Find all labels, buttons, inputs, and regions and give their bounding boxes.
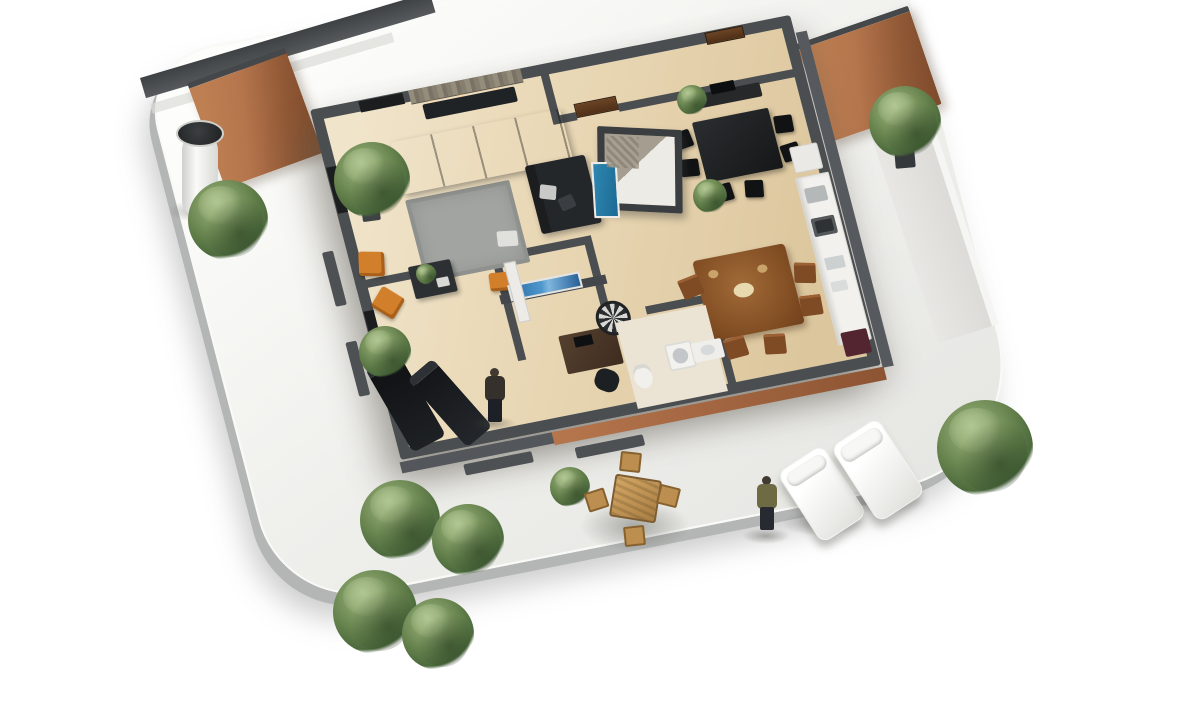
plant-kitchen-small (693, 179, 727, 213)
person-indoor-torso (485, 376, 505, 401)
person-indoor-legs (488, 399, 502, 422)
plant-lounge (359, 326, 411, 378)
outdoor-chair-2 (619, 451, 642, 473)
plant-terrace-b (432, 504, 504, 576)
plant-living-room (334, 142, 410, 218)
scene-overlay (0, 0, 1200, 715)
plant-palm-right (937, 400, 1033, 496)
outdoor-chair-4 (623, 525, 646, 547)
plant-terrace-a (360, 480, 440, 560)
person-terrace-torso (757, 484, 777, 509)
plant-walkway-right (869, 86, 941, 158)
plant-terrace-small (550, 467, 590, 507)
apartment-3d-floorplan-scene (0, 0, 1200, 715)
plant-dining-small (677, 85, 707, 115)
outdoor-table (609, 474, 662, 524)
person-indoor (478, 368, 512, 426)
plant-walkway-left (188, 180, 268, 260)
plant-terrace-d (402, 598, 474, 670)
person-terrace (750, 476, 784, 534)
person-terrace-legs (760, 507, 774, 530)
